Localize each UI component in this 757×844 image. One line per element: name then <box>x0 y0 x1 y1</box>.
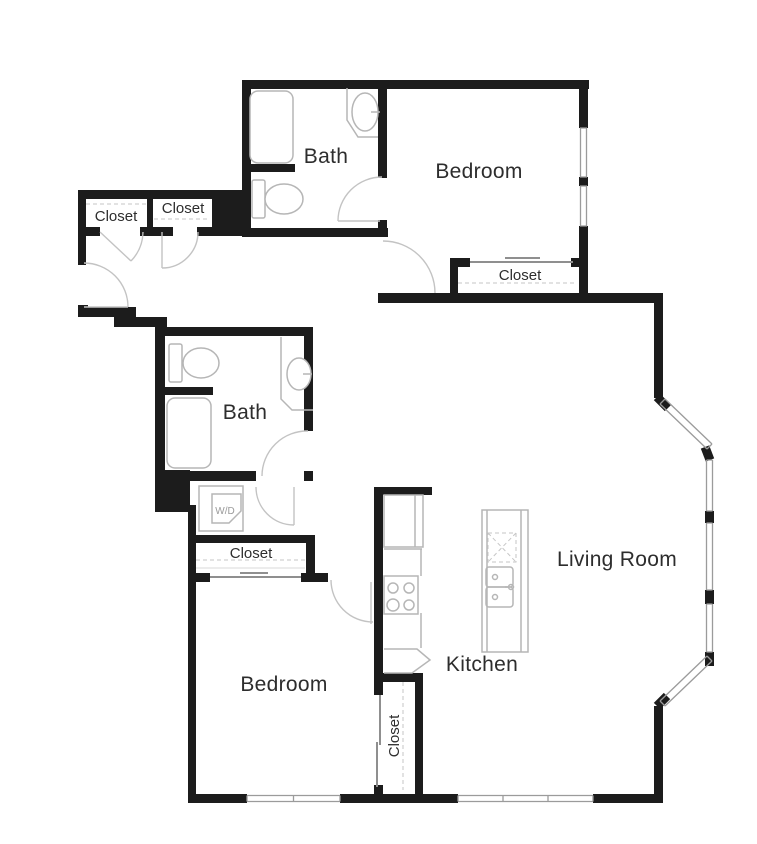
refrigerator <box>384 495 423 547</box>
wall <box>155 327 165 478</box>
label-closet-bedroom-upper: Closet <box>499 267 542 284</box>
wall <box>114 317 167 327</box>
wall <box>378 293 663 303</box>
wall <box>243 80 589 89</box>
sink <box>347 88 380 137</box>
wall <box>705 511 714 523</box>
label-bath-upper: Bath <box>304 145 348 168</box>
door-bath-upper <box>338 177 382 221</box>
wall <box>579 80 588 128</box>
island-cooktop <box>488 533 516 562</box>
sliding-door-closet-kitchen <box>377 695 380 787</box>
label-closet-kitchen: Closet <box>386 714 403 757</box>
toilet <box>252 180 303 218</box>
wall <box>188 794 247 803</box>
window-bay-3 <box>707 604 713 652</box>
wall <box>78 190 251 199</box>
wall <box>374 487 383 695</box>
wall <box>579 177 588 186</box>
wall <box>415 673 423 803</box>
window-bay-2 <box>707 523 713 590</box>
sliding-door-closet-hall <box>210 573 301 577</box>
wall <box>301 573 328 582</box>
door-washer-dryer <box>256 487 294 525</box>
sliding-door-closet-bedroom-upper <box>470 258 573 262</box>
wall <box>188 505 196 803</box>
window-bedroom-lower <box>247 796 340 802</box>
wall <box>188 573 210 582</box>
window-bedroom-upper-1 <box>580 128 587 177</box>
label-kitchen: Kitchen <box>446 653 518 676</box>
wall <box>78 307 136 317</box>
wall <box>163 387 213 395</box>
wall <box>242 164 295 172</box>
bathtub <box>250 91 293 163</box>
label-bedroom-upper: Bedroom <box>435 160 522 183</box>
island-sink <box>486 567 514 607</box>
wall <box>155 470 190 512</box>
window-bay-1 <box>707 460 713 511</box>
label-closet-entry-left: Closet <box>95 208 138 225</box>
wall <box>450 258 470 267</box>
wall <box>140 227 173 236</box>
window-bedroom-upper-2 <box>580 186 587 226</box>
label-closet-entry-right: Closet <box>162 200 205 217</box>
wall <box>155 327 313 336</box>
door-closet-entry-left <box>100 232 143 261</box>
floor-plan: Bath Bedroom Closet Closet Closet Bath W… <box>0 0 757 844</box>
kitchen-island <box>482 510 528 652</box>
wall <box>571 258 588 267</box>
wall <box>378 80 387 178</box>
bathtub <box>167 398 211 468</box>
window-living-room <box>458 796 593 802</box>
wall <box>193 535 315 543</box>
door-bedroom-upper <box>383 241 435 293</box>
toilet <box>169 344 219 382</box>
wall <box>593 794 663 803</box>
floor-plan-page: Bath Bedroom Closet Closet Closet Bath W… <box>0 0 757 844</box>
wall <box>197 227 212 236</box>
door-bedroom-lower <box>331 580 373 624</box>
stove <box>384 576 418 614</box>
label-bath-lower: Bath <box>223 401 267 424</box>
wall-corner <box>657 696 667 706</box>
wall <box>654 295 663 398</box>
wall <box>78 190 86 265</box>
wall <box>304 471 313 481</box>
sliding-doors <box>210 258 573 787</box>
wall <box>242 228 388 237</box>
kitchen-fixtures <box>384 495 528 673</box>
wall <box>705 590 714 604</box>
label-living-room: Living Room <box>557 548 677 571</box>
wall <box>85 227 100 236</box>
wall <box>340 794 458 803</box>
label-washer-dryer: W/D <box>215 506 234 517</box>
wall <box>654 706 663 803</box>
door-bath-lower <box>262 431 308 476</box>
door-closet-entry-right <box>162 232 198 268</box>
label-closet-hall: Closet <box>230 545 273 562</box>
label-bedroom-lower: Bedroom <box>240 673 327 696</box>
door-entry <box>84 263 128 307</box>
